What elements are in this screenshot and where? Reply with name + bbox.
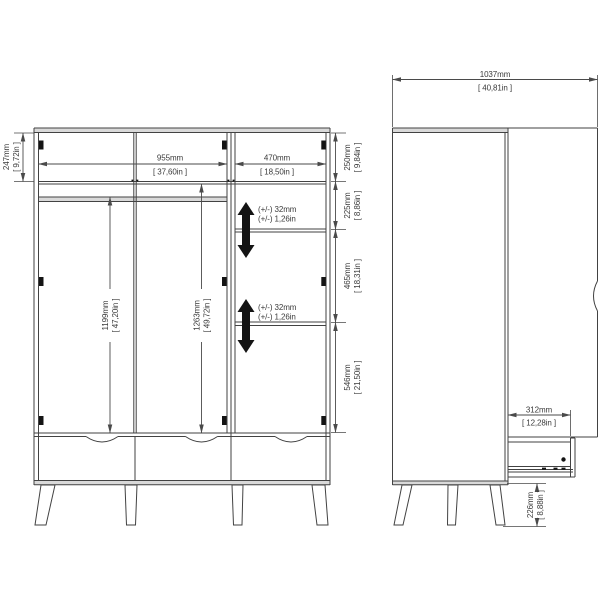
dim-225-inch: [ 8,86in ] [353, 191, 362, 221]
dim-312-mm: 312mm [526, 406, 553, 415]
dim-1263-inch: [ 49,72in ] [203, 298, 212, 332]
dim-250-label: 250mm [ 9,84in ] [343, 143, 362, 173]
dim-465-inch: [ 18,31in ] [353, 259, 362, 293]
front-bottom-panel [34, 481, 330, 485]
front-top-panel [34, 128, 330, 133]
side-legs [394, 485, 505, 525]
drawer-handle-arcs [86, 437, 307, 443]
dim-250-inch: [ 9,84in ] [353, 143, 362, 173]
dim-465-mm: 465mm [343, 262, 352, 289]
dim-247-label: 247mm [ 9,72in ] [2, 142, 21, 172]
dim-1263-label: 1263mm [ 49,72in ] [193, 298, 212, 332]
side-extension-lines [393, 75, 598, 527]
front-extension-lines [14, 133, 346, 433]
dim-546-inch: [ 21,50in ] [353, 360, 362, 394]
dim-247-inch: [ 9,72in ] [12, 142, 21, 172]
shelf-adjust-1-inch: (+/-) 1,26in [258, 215, 296, 224]
shelf-adjust-2-inch: (+/-) 1,26in [258, 313, 296, 322]
dim-1199-label: 1199mm [ 47,20in ] [101, 298, 120, 332]
side-cabinet-structure [393, 128, 598, 485]
dim-465-label: 465mm [ 18,31in ] [343, 259, 362, 293]
door-handle-groove-arc [594, 281, 598, 311]
dim-226-inch: [ 8,88in ] [536, 490, 545, 520]
front-legs [35, 485, 328, 525]
dim-226-mm: 226mm [526, 491, 535, 518]
dim-1037-inch: [ 40,81in ] [478, 84, 512, 93]
front-view: 955mm [ 37,60in ] 470mm [ 18,50in ] 247m… [2, 128, 362, 525]
dim-1263-mm: 1263mm [193, 300, 202, 331]
dim-247-mm: 247mm [2, 143, 11, 170]
dim-1199-inch: [ 47,20in ] [111, 298, 120, 332]
dim-955-mm: 955mm [157, 154, 184, 163]
double-arrow-icon [238, 202, 255, 258]
shelf-adjust-1-mm: (+/-) 32mm [258, 205, 297, 214]
dim-1037-mm: 1037mm [480, 70, 511, 79]
dim-225-label: 225mm [ 8,86in ] [343, 191, 362, 221]
dim-226-label: 226mm [ 8,88in ] [526, 490, 545, 520]
dim-546-mm: 546mm [343, 364, 352, 391]
drawer-screw-dot [561, 457, 565, 461]
dim-225-mm: 225mm [343, 192, 352, 219]
shelf-adjust-2-mm: (+/-) 32mm [258, 303, 297, 312]
side-view: 1037mm [ 40,81in ] 312mm [ 12,28in ] 226… [393, 70, 598, 527]
dim-546-label: 546mm [ 21,50in ] [343, 360, 362, 394]
dim-1199-mm: 1199mm [101, 300, 110, 330]
dim-312-inch: [ 12,28in ] [522, 419, 556, 428]
hinge-marks [39, 141, 326, 426]
dim-955-inch: [ 37,60in ] [153, 168, 187, 177]
side-top-panel [393, 128, 509, 133]
wardrobe-dimension-drawing: 955mm [ 37,60in ] 470mm [ 18,50in ] 247m… [0, 0, 600, 600]
side-bottom-panel [393, 481, 509, 485]
front-hanging-rail [39, 197, 228, 202]
dim-470-mm: 470mm [264, 154, 291, 163]
technical-drawing-svg: 955mm [ 37,60in ] 470mm [ 18,50in ] 247m… [0, 0, 600, 600]
dim-470-inch: [ 18,50in ] [260, 168, 294, 177]
dim-250-mm: 250mm [343, 144, 352, 171]
